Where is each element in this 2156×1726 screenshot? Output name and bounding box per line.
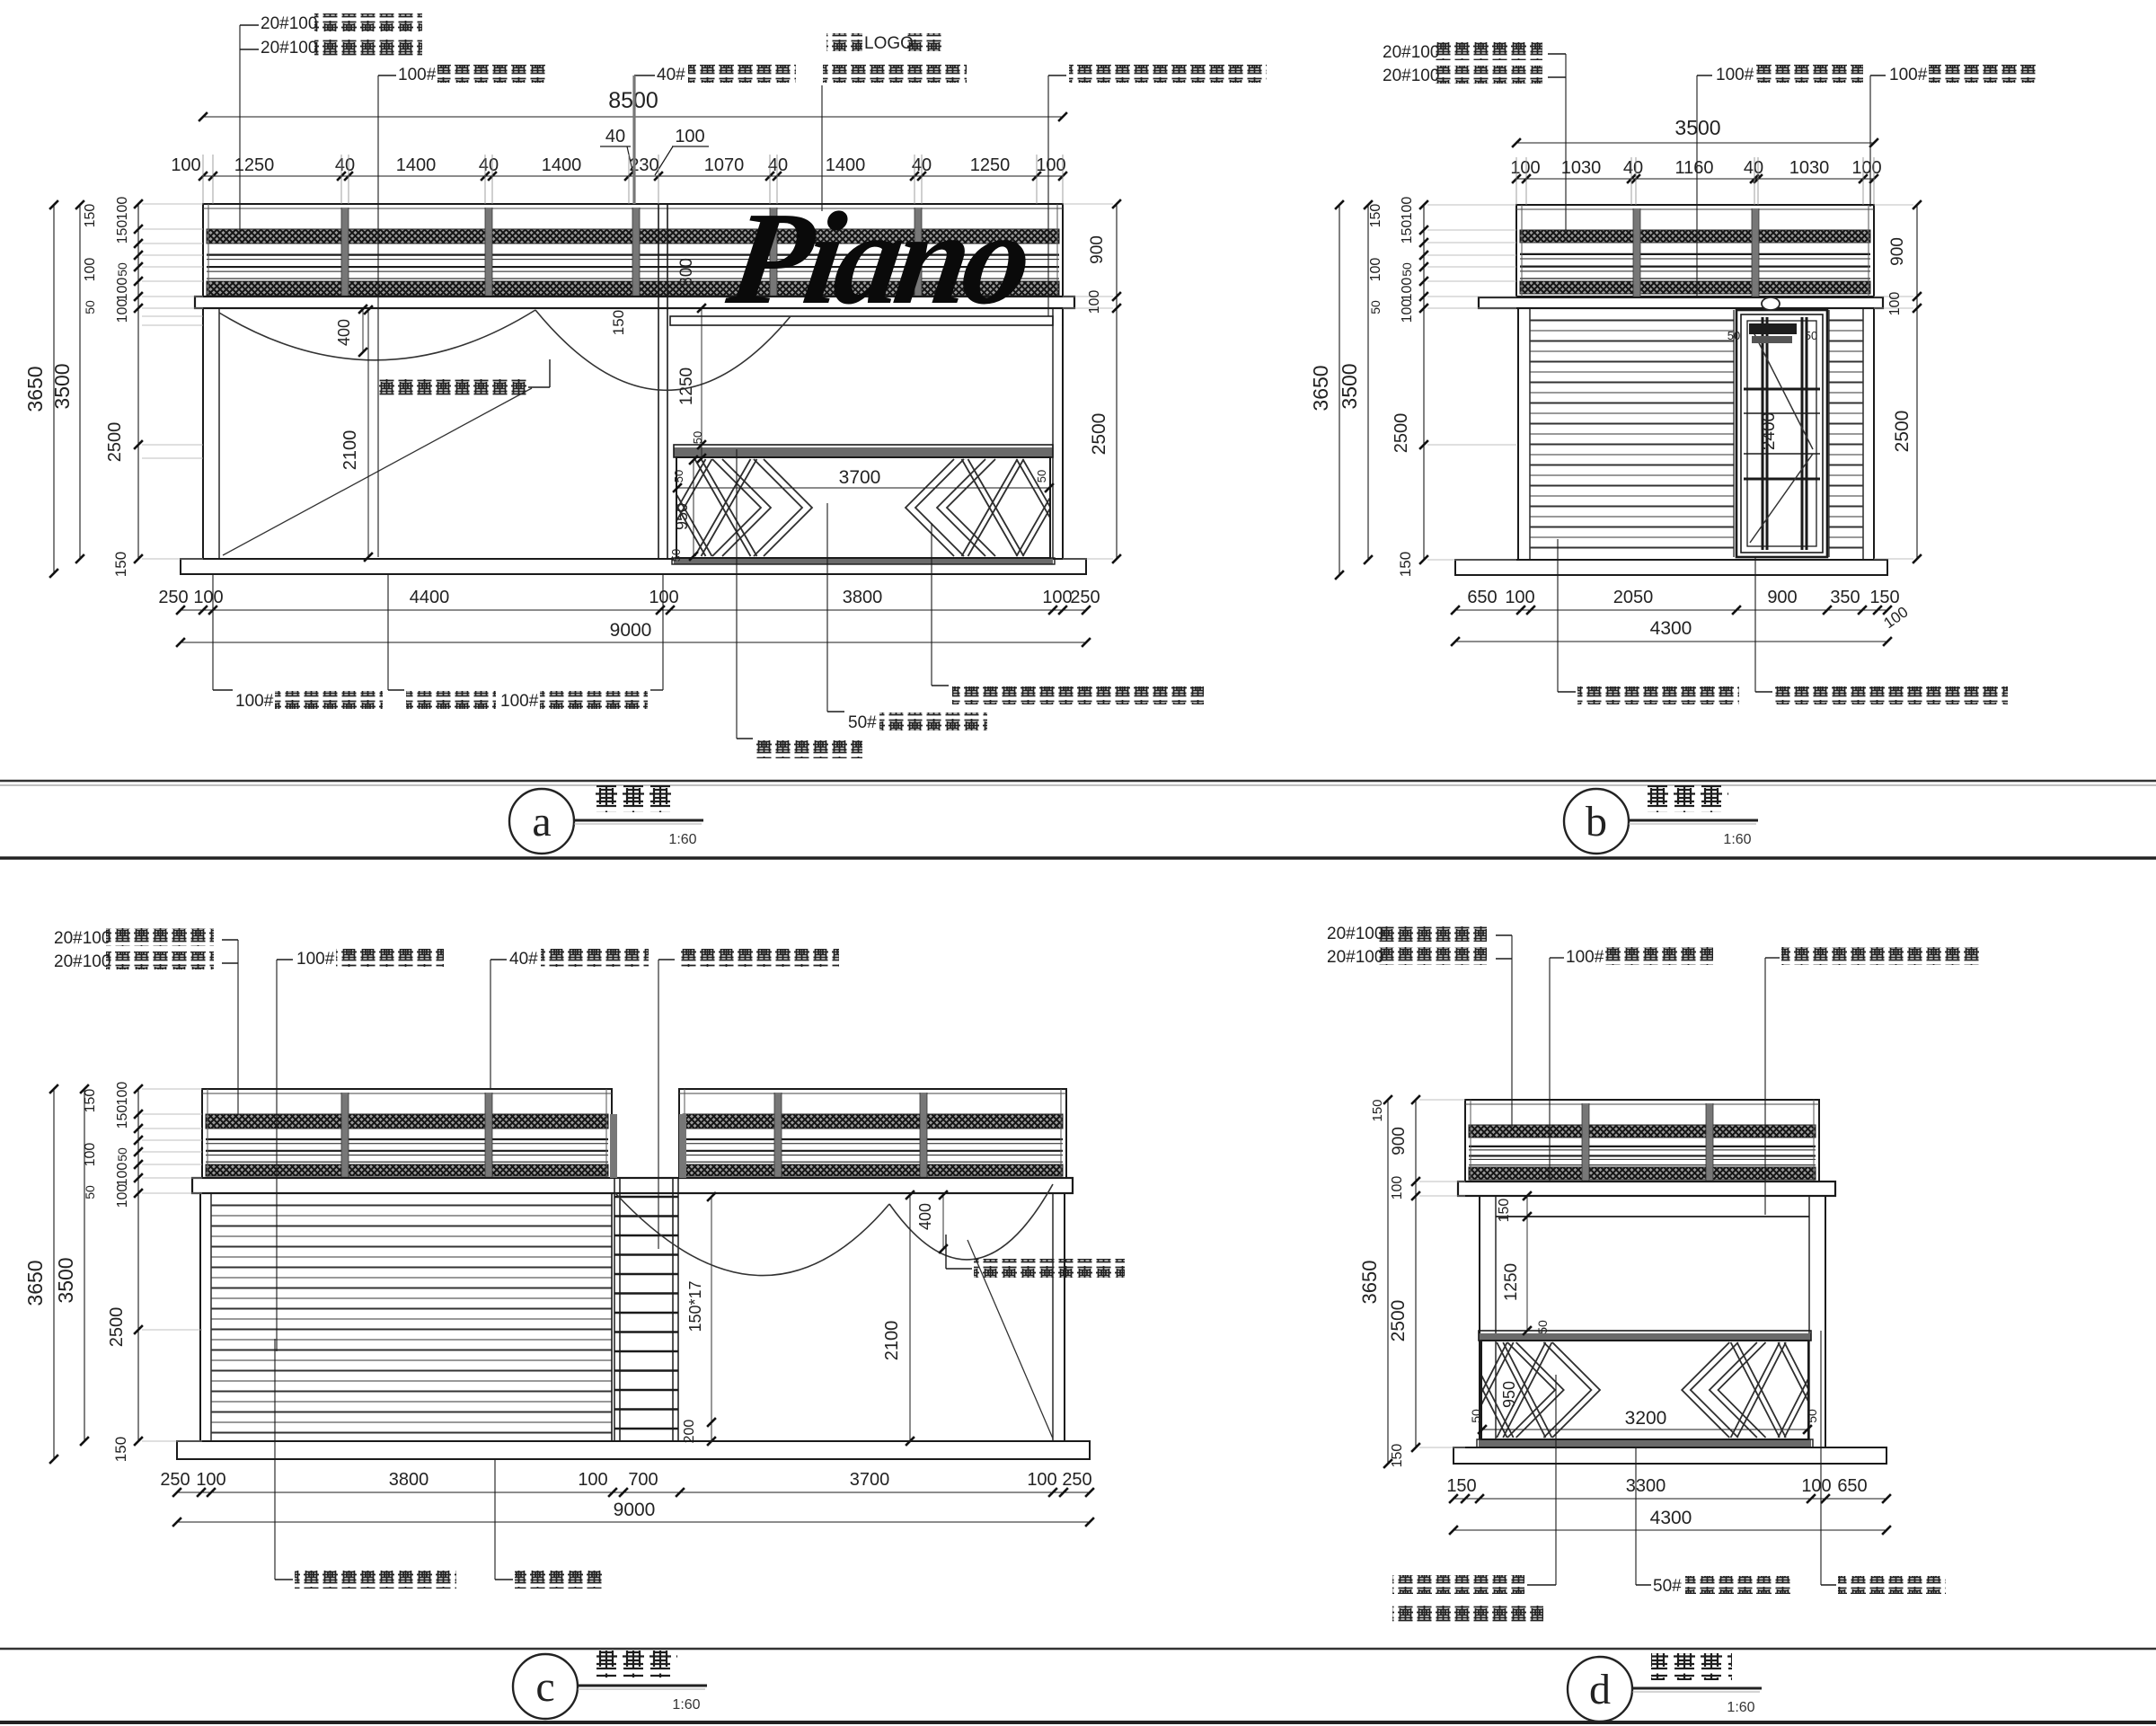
- svg-text:40#: 40#: [509, 950, 538, 969]
- svg-text:50: 50: [115, 1147, 129, 1162]
- svg-text:150: 150: [1390, 1444, 1405, 1468]
- svg-text:100: 100: [578, 1470, 607, 1490]
- svg-text:400: 400: [335, 319, 353, 346]
- svg-text:20#100: 20#100: [1383, 66, 1439, 85]
- svg-text:900: 900: [1767, 588, 1797, 607]
- svg-text:50: 50: [1368, 300, 1383, 314]
- svg-text:40: 40: [605, 127, 625, 146]
- svg-text:100: 100: [1400, 278, 1415, 302]
- svg-text:100#: 100#: [235, 692, 274, 711]
- svg-text:100: 100: [83, 1143, 98, 1167]
- svg-text:3200: 3200: [1625, 1408, 1667, 1429]
- svg-text:20#100: 20#100: [261, 14, 317, 33]
- svg-text:50: 50: [83, 1185, 97, 1199]
- svg-text:50#: 50#: [1653, 1577, 1682, 1596]
- svg-text:50: 50: [1400, 262, 1414, 277]
- svg-text:100: 100: [1400, 197, 1415, 221]
- svg-text:Piano: Piano: [720, 185, 1038, 332]
- svg-text:650: 650: [1467, 588, 1497, 607]
- svg-text:c: c: [535, 1663, 554, 1711]
- svg-text:1:60: 1:60: [672, 1697, 700, 1713]
- svg-text:b: b: [1586, 798, 1607, 845]
- svg-text:150: 150: [115, 220, 130, 244]
- svg-text:100: 100: [1027, 1470, 1056, 1490]
- svg-text:3500: 3500: [54, 1257, 77, 1303]
- svg-text:100: 100: [115, 1163, 130, 1187]
- svg-text:1160: 1160: [1674, 158, 1713, 178]
- svg-text:150: 150: [115, 1105, 130, 1129]
- svg-text:2500: 2500: [105, 422, 125, 463]
- svg-text:1:60: 1:60: [668, 832, 696, 847]
- svg-text:700: 700: [628, 1470, 658, 1490]
- svg-text:250: 250: [1070, 588, 1100, 607]
- svg-text:100#: 100#: [1566, 948, 1604, 967]
- svg-text:3800: 3800: [389, 1470, 429, 1490]
- svg-text:900: 900: [1888, 237, 1907, 266]
- svg-text:1030: 1030: [1561, 158, 1602, 178]
- svg-text:100#: 100#: [1716, 66, 1754, 84]
- svg-text:40: 40: [768, 155, 788, 175]
- svg-text:50: 50: [115, 262, 129, 277]
- svg-text:950: 950: [673, 503, 691, 530]
- svg-text:1:60: 1:60: [1727, 1700, 1754, 1715]
- svg-text:150: 150: [1869, 588, 1899, 607]
- svg-text:100: 100: [196, 1470, 225, 1490]
- svg-text:100: 100: [1390, 1176, 1405, 1200]
- svg-text:800: 800: [677, 258, 696, 287]
- svg-text:250: 250: [158, 588, 188, 607]
- svg-text:LOGO: LOGO: [864, 34, 914, 53]
- svg-text:1070: 1070: [704, 155, 745, 175]
- svg-text:150: 150: [1497, 1199, 1512, 1223]
- svg-text:2050: 2050: [1613, 588, 1654, 607]
- svg-text:3650: 3650: [1309, 365, 1332, 411]
- svg-text:100#: 100#: [296, 950, 335, 969]
- svg-text:3650: 3650: [23, 366, 47, 412]
- svg-text:2400: 2400: [1760, 412, 1779, 450]
- svg-text:150*17: 150*17: [686, 1280, 704, 1332]
- svg-text:50: 50: [1727, 329, 1740, 342]
- svg-text:200: 200: [682, 1420, 697, 1444]
- svg-text:100: 100: [1087, 290, 1102, 314]
- svg-text:150: 150: [112, 552, 129, 577]
- svg-text:2500: 2500: [1892, 411, 1913, 453]
- svg-text:50: 50: [1035, 470, 1048, 482]
- svg-text:4300: 4300: [1650, 1508, 1692, 1528]
- svg-text:2100: 2100: [882, 1321, 902, 1361]
- svg-text:900: 900: [1088, 235, 1107, 264]
- svg-text:950: 950: [1500, 1381, 1518, 1408]
- svg-text:9000: 9000: [610, 620, 652, 641]
- svg-text:1030: 1030: [1789, 158, 1830, 178]
- svg-text:1250: 1250: [1502, 1263, 1521, 1301]
- svg-text:3300: 3300: [1626, 1476, 1666, 1496]
- svg-text:1400: 1400: [826, 155, 866, 175]
- svg-text:150: 150: [83, 204, 98, 228]
- svg-text:100: 100: [1801, 1476, 1831, 1496]
- svg-text:100: 100: [83, 258, 98, 282]
- svg-text:100: 100: [115, 1184, 130, 1208]
- svg-text:3500: 3500: [1338, 363, 1361, 409]
- svg-text:100: 100: [171, 155, 200, 175]
- svg-text:400: 400: [916, 1203, 934, 1230]
- svg-text:100#: 100#: [398, 66, 437, 84]
- svg-text:2500: 2500: [107, 1307, 127, 1348]
- svg-text:40#: 40#: [657, 66, 685, 84]
- svg-text:150: 150: [1446, 1476, 1476, 1496]
- svg-text:20#100: 20#100: [261, 39, 317, 58]
- svg-text:100: 100: [1510, 158, 1540, 178]
- svg-text:3500: 3500: [50, 363, 74, 409]
- svg-text:900: 900: [1390, 1127, 1409, 1155]
- svg-text:100: 100: [115, 299, 130, 323]
- svg-text:150: 150: [1370, 1099, 1385, 1121]
- svg-text:50: 50: [672, 470, 685, 482]
- svg-text:2100: 2100: [340, 430, 360, 471]
- svg-text:50: 50: [691, 431, 704, 444]
- svg-text:100: 100: [1400, 299, 1415, 323]
- svg-text:150: 150: [112, 1437, 129, 1462]
- svg-text:d: d: [1589, 1666, 1611, 1713]
- svg-text:150: 150: [1400, 220, 1415, 244]
- svg-text:250: 250: [160, 1470, 190, 1490]
- svg-text:100: 100: [1887, 292, 1903, 316]
- svg-text:2500: 2500: [1089, 413, 1109, 456]
- svg-text:100: 100: [1505, 588, 1534, 607]
- svg-text:1400: 1400: [542, 155, 582, 175]
- svg-text:50: 50: [1469, 1409, 1483, 1423]
- svg-text:3700: 3700: [850, 1470, 890, 1490]
- svg-text:20#100: 20#100: [54, 952, 110, 971]
- svg-text:100: 100: [649, 588, 678, 607]
- svg-text:150: 150: [610, 310, 627, 335]
- svg-text:3800: 3800: [843, 588, 883, 607]
- svg-text:1250: 1250: [970, 155, 1011, 175]
- svg-text:1:60: 1:60: [1723, 832, 1751, 847]
- svg-text:100: 100: [115, 1082, 130, 1106]
- svg-text:20#100: 20#100: [1327, 925, 1383, 943]
- svg-text:50: 50: [669, 549, 683, 562]
- svg-text:4400: 4400: [410, 588, 450, 607]
- svg-text:50: 50: [1805, 329, 1817, 342]
- svg-text:2500: 2500: [1392, 413, 1411, 454]
- svg-text:50: 50: [1535, 1320, 1550, 1334]
- svg-text:50: 50: [1805, 1409, 1819, 1423]
- svg-text:20#100: 20#100: [1383, 43, 1439, 62]
- svg-text:1250: 1250: [677, 367, 696, 405]
- svg-text:4300: 4300: [1650, 618, 1692, 639]
- svg-text:650: 650: [1837, 1476, 1867, 1496]
- svg-text:3500: 3500: [1674, 116, 1720, 139]
- svg-text:100: 100: [1042, 588, 1072, 607]
- svg-text:150: 150: [83, 1089, 98, 1113]
- svg-text:100#: 100#: [1889, 66, 1928, 84]
- svg-text:100: 100: [115, 197, 130, 221]
- svg-text:350: 350: [1830, 588, 1860, 607]
- svg-text:150: 150: [1368, 204, 1383, 228]
- svg-text:100#: 100#: [500, 692, 539, 711]
- svg-text:250: 250: [1062, 1470, 1091, 1490]
- svg-text:3700: 3700: [839, 467, 881, 488]
- svg-text:50: 50: [83, 300, 97, 314]
- svg-text:3650: 3650: [1358, 1261, 1381, 1305]
- svg-text:20#100: 20#100: [54, 929, 110, 948]
- svg-text:100: 100: [115, 278, 130, 302]
- svg-text:2500: 2500: [1388, 1300, 1409, 1342]
- svg-text:150: 150: [1397, 552, 1414, 577]
- svg-text:20#100: 20#100: [1327, 948, 1383, 967]
- svg-text:50#: 50#: [848, 713, 877, 732]
- svg-text:100: 100: [1368, 258, 1383, 282]
- svg-text:100: 100: [675, 127, 704, 146]
- svg-text:9000: 9000: [614, 1500, 656, 1520]
- svg-text:a: a: [532, 798, 551, 845]
- svg-text:100: 100: [193, 588, 223, 607]
- svg-text:3650: 3650: [23, 1260, 47, 1306]
- svg-text:1400: 1400: [396, 155, 437, 175]
